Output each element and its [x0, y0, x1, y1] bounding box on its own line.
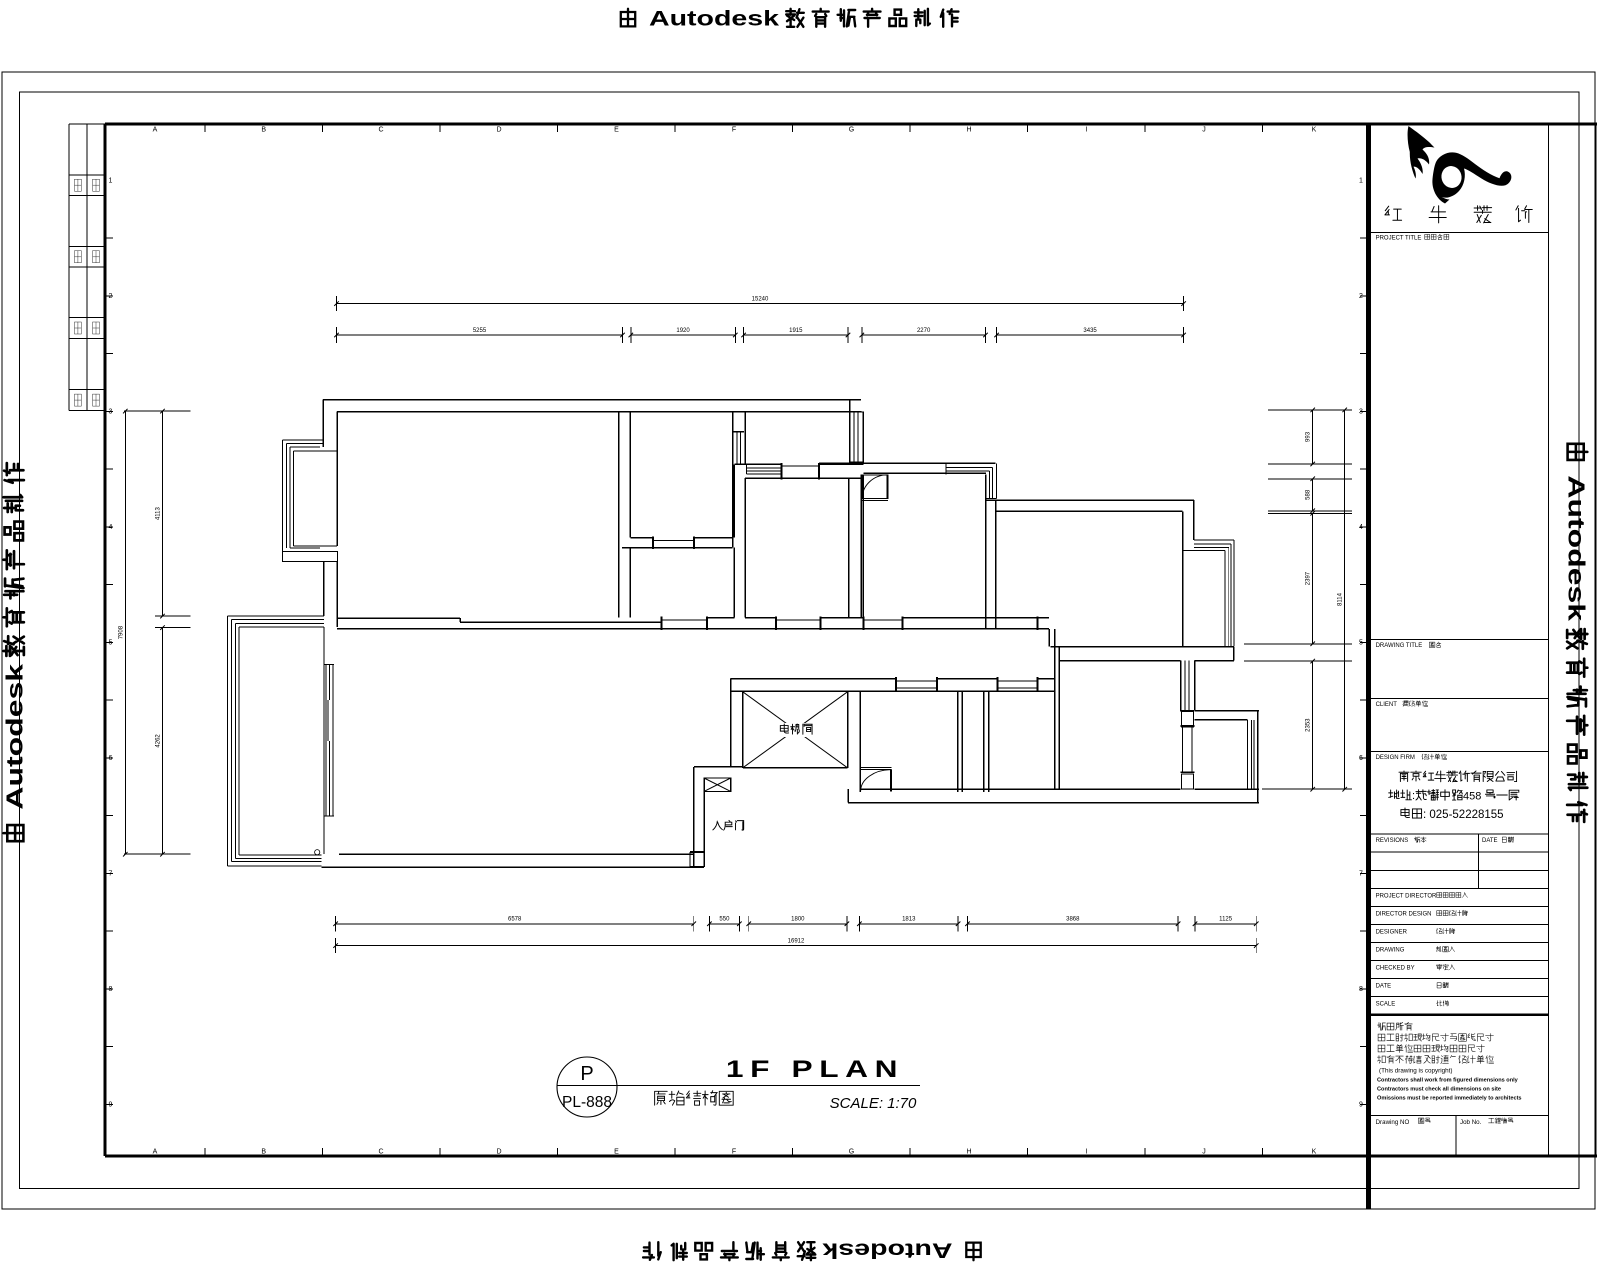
svg-text:K: K	[1312, 1149, 1317, 1156]
svg-text:: 025-52228155: : 025-52228155	[1423, 809, 1504, 821]
svg-text:2: 2	[1359, 293, 1363, 300]
svg-text:6: 6	[1359, 755, 1363, 762]
svg-text:4262: 4262	[156, 734, 162, 748]
svg-text:15240: 15240	[752, 297, 769, 303]
svg-text:G: G	[849, 127, 854, 134]
svg-text:588: 588	[1306, 489, 1312, 500]
svg-text:(This drawing is copyright): (This drawing is copyright)	[1379, 1068, 1453, 1075]
svg-text:3435: 3435	[1083, 328, 1097, 334]
svg-text:2270: 2270	[917, 328, 931, 334]
svg-text:B: B	[261, 127, 266, 134]
svg-text:Autodesk: Autodesk	[1564, 475, 1590, 621]
svg-text:DRAWING: DRAWING	[1376, 948, 1405, 954]
svg-text:1F PLAN: 1F PLAN	[726, 1056, 904, 1082]
svg-text:F: F	[732, 127, 736, 134]
svg-text:1813: 1813	[902, 917, 916, 923]
svg-text:3: 3	[1359, 409, 1363, 416]
svg-text:16912: 16912	[788, 939, 805, 945]
svg-text:DATE: DATE	[1376, 984, 1392, 990]
svg-text:2397: 2397	[1306, 571, 1312, 585]
svg-text:8: 8	[109, 986, 113, 993]
svg-text:9: 9	[109, 1102, 113, 1109]
svg-text:P: P	[580, 1063, 593, 1085]
svg-text:DRAWING TITLE: DRAWING TITLE	[1376, 643, 1423, 649]
svg-text:5: 5	[1359, 640, 1363, 647]
svg-text:I: I	[1086, 1149, 1088, 1156]
svg-text:1915: 1915	[789, 328, 803, 334]
svg-text:A: A	[153, 1149, 158, 1156]
svg-text:550: 550	[719, 917, 730, 923]
svg-text:7908: 7908	[118, 625, 124, 639]
svg-text:E: E	[614, 1149, 619, 1156]
svg-text:PL-888: PL-888	[562, 1094, 612, 1111]
svg-text:K: K	[1312, 127, 1317, 134]
svg-text:Autodesk: Autodesk	[649, 7, 779, 30]
svg-text:DATE: DATE	[1482, 838, 1498, 844]
svg-text::: :	[1412, 790, 1415, 802]
svg-text:G: G	[849, 1149, 854, 1156]
svg-text:8114: 8114	[1338, 592, 1344, 606]
svg-text:CHECKED BY: CHECKED BY	[1376, 966, 1415, 972]
svg-text:Omissions must be reported imm: Omissions must be reported immediately t…	[1377, 1096, 1522, 1102]
svg-text:7: 7	[109, 871, 113, 878]
svg-text:6: 6	[109, 755, 113, 762]
svg-text:1125: 1125	[1219, 917, 1233, 923]
svg-text:J: J	[1202, 1149, 1206, 1156]
svg-text:5: 5	[109, 640, 113, 647]
svg-text:Job No.: Job No.	[1460, 1119, 1482, 1126]
svg-text:H: H	[966, 1149, 971, 1156]
svg-text:2353: 2353	[1306, 718, 1312, 732]
svg-text:4: 4	[1359, 524, 1363, 531]
svg-text:1: 1	[1359, 178, 1363, 185]
svg-text:Contractors shall work from fi: Contractors shall work from figured dime…	[1377, 1078, 1519, 1084]
svg-text:PROJECT DIRECTOR: PROJECT DIRECTOR	[1376, 893, 1437, 899]
svg-text:DESIGN FIRM: DESIGN FIRM	[1376, 755, 1415, 761]
svg-text:2: 2	[109, 293, 113, 300]
svg-text:Autodesk: Autodesk	[822, 1238, 952, 1261]
svg-text:CLIENT: CLIENT	[1376, 702, 1398, 708]
svg-text:SCALE: SCALE	[1376, 1002, 1396, 1008]
svg-text:5255: 5255	[473, 328, 487, 334]
svg-text:Contractors must check all dim: Contractors must check all dimensions on…	[1377, 1087, 1501, 1093]
svg-text:7: 7	[1359, 871, 1363, 878]
svg-text:DIRECTOR DESIGN: DIRECTOR DESIGN	[1376, 911, 1432, 917]
svg-text:F: F	[732, 1149, 736, 1156]
svg-text:PROJECT TITLE: PROJECT TITLE	[1376, 236, 1422, 242]
svg-text:3: 3	[109, 409, 113, 416]
svg-text:B: B	[261, 1149, 266, 1156]
svg-text:I: I	[1086, 127, 1088, 134]
svg-text:9: 9	[1359, 1102, 1363, 1109]
svg-text:DESIGNER: DESIGNER	[1376, 929, 1408, 935]
svg-text:993: 993	[1306, 431, 1312, 442]
svg-text:3868: 3868	[1066, 917, 1080, 923]
svg-text:C: C	[378, 1149, 383, 1156]
svg-text:8: 8	[1359, 986, 1363, 993]
svg-text:1920: 1920	[676, 328, 690, 334]
svg-text:J: J	[1202, 127, 1206, 134]
svg-text:A: A	[153, 127, 158, 134]
svg-text:C: C	[378, 127, 383, 134]
svg-text:E: E	[614, 127, 619, 134]
svg-text:H: H	[966, 127, 971, 134]
svg-text:SCALE: 1:70: SCALE: 1:70	[830, 1095, 917, 1112]
svg-text:1800: 1800	[791, 917, 805, 923]
svg-text:D: D	[496, 1149, 501, 1156]
svg-text:Drawing NO: Drawing NO	[1376, 1119, 1410, 1126]
svg-text:6578: 6578	[508, 917, 522, 923]
svg-text:1: 1	[109, 178, 113, 185]
svg-text:REVISIONS: REVISIONS	[1376, 838, 1409, 844]
svg-text:4: 4	[109, 524, 113, 531]
svg-text:Autodesk: Autodesk	[1, 663, 27, 809]
svg-text:458: 458	[1463, 791, 1481, 803]
svg-text:D: D	[496, 127, 501, 134]
svg-text:4113: 4113	[156, 506, 162, 520]
